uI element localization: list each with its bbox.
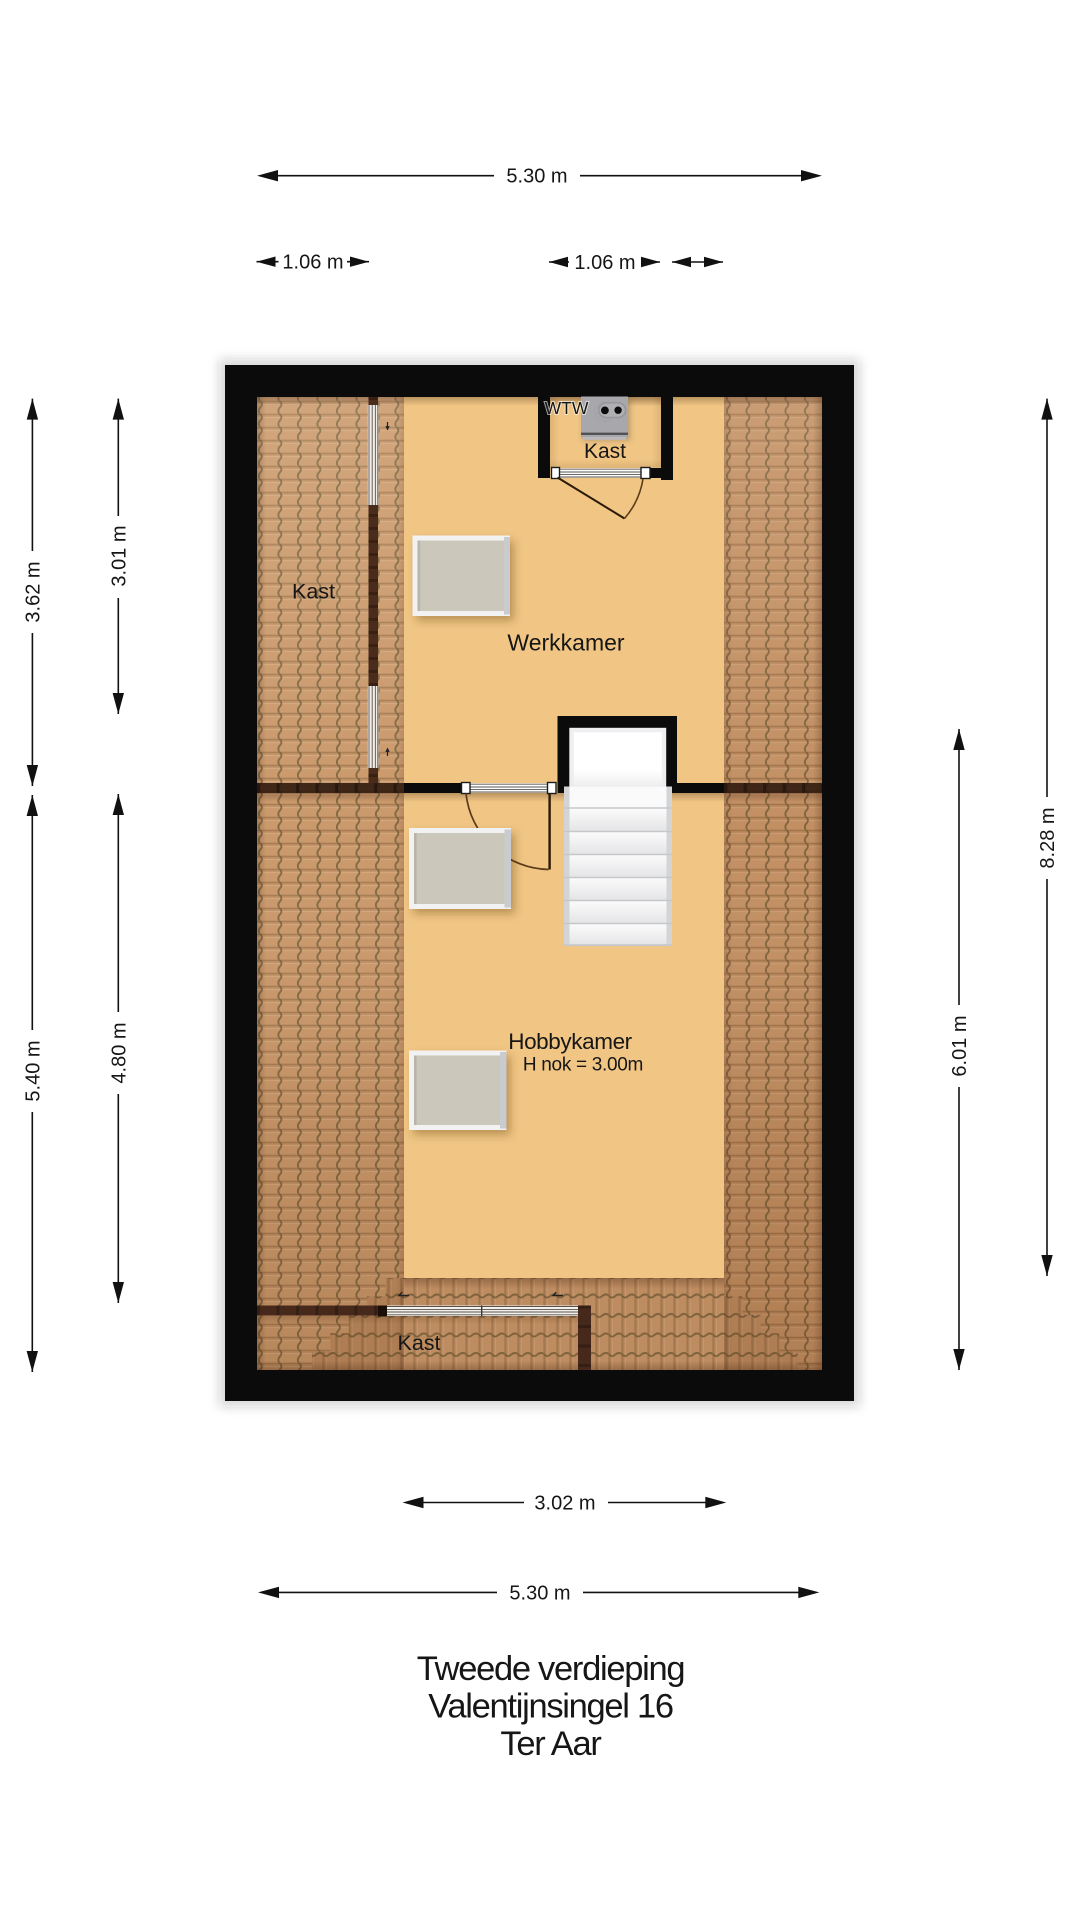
- svg-text:3.02 m: 3.02 m: [534, 1493, 595, 1515]
- svg-text:3.62 m: 3.62 m: [22, 561, 44, 622]
- svg-text:3.01 m: 3.01 m: [108, 525, 130, 586]
- svg-text:Tweede verdieping: Tweede verdieping: [417, 1650, 685, 1688]
- svg-text:5.30 m: 5.30 m: [506, 166, 567, 188]
- svg-text:WTW: WTW: [545, 398, 589, 418]
- svg-text:Kast: Kast: [584, 440, 626, 463]
- svg-text:Valentijnsingel 16: Valentijnsingel 16: [428, 1688, 673, 1726]
- svg-text:H nok = 3.00m: H nok = 3.00m: [523, 1055, 643, 1076]
- svg-text:6.01 m: 6.01 m: [949, 1015, 971, 1076]
- svg-text:8.28 m: 8.28 m: [1037, 807, 1059, 868]
- svg-text:Kast: Kast: [292, 580, 335, 604]
- svg-text:4.80 m: 4.80 m: [108, 1022, 130, 1083]
- svg-text:Kast: Kast: [397, 1331, 440, 1355]
- svg-text:Hobbykamer: Hobbykamer: [508, 1029, 632, 1054]
- svg-text:Ter Aar: Ter Aar: [500, 1725, 601, 1763]
- svg-text:1.06 m: 1.06 m: [574, 252, 635, 274]
- svg-text:Werkkamer: Werkkamer: [507, 630, 624, 656]
- svg-text:5.30 m: 5.30 m: [509, 1582, 570, 1604]
- svg-text:1.06 m: 1.06 m: [282, 252, 343, 274]
- svg-text:5.40 m: 5.40 m: [22, 1040, 44, 1101]
